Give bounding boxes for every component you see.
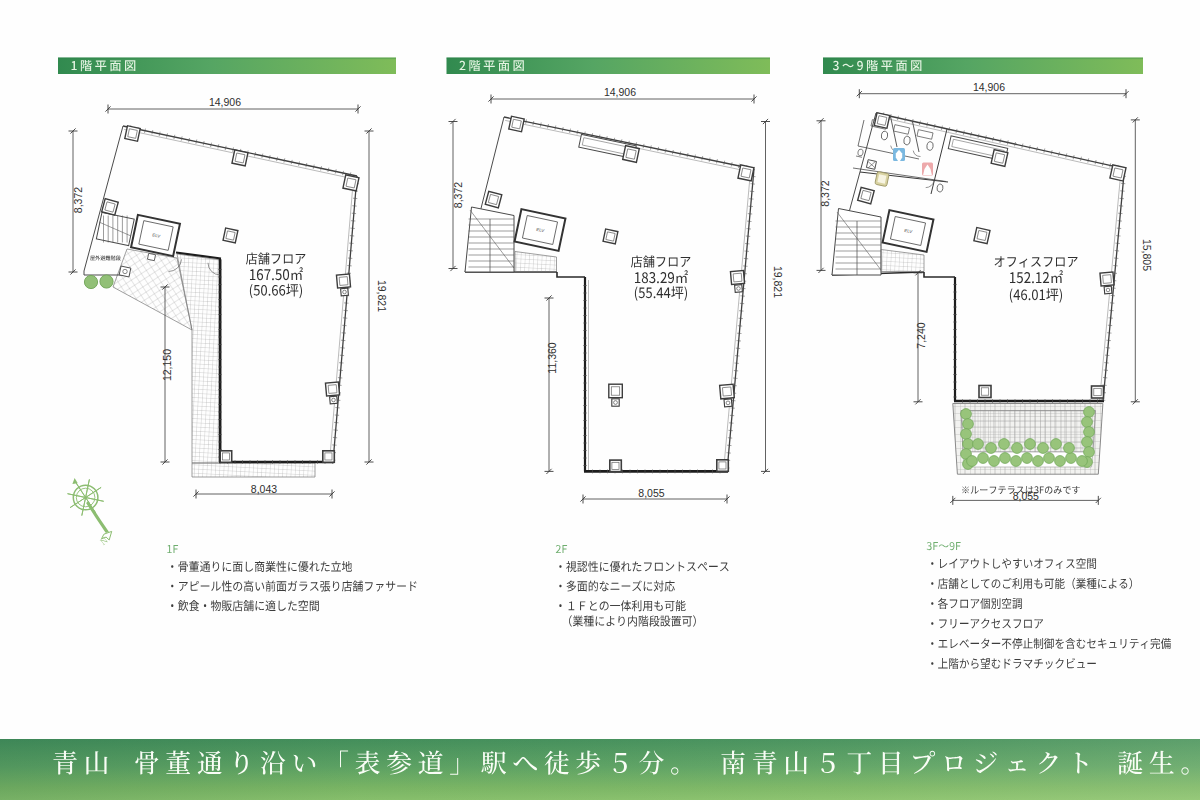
svg-text:8,043: 8,043 (251, 483, 277, 495)
svg-text:14,906: 14,906 (604, 86, 636, 98)
svg-text:12,150: 12,150 (161, 349, 173, 381)
svg-text:8,055: 8,055 (638, 487, 664, 499)
svg-text:8,372: 8,372 (72, 187, 84, 213)
svg-text:15,805: 15,805 (1141, 239, 1153, 271)
svg-text:14,906: 14,906 (209, 96, 241, 108)
svg-text:11,360: 11,360 (546, 342, 558, 373)
svg-text:19,821: 19,821 (772, 266, 784, 298)
svg-text:8,372: 8,372 (819, 180, 831, 206)
svg-text:7,240: 7,240 (915, 322, 927, 348)
svg-text:14,906: 14,906 (973, 81, 1005, 93)
svg-text:19,821: 19,821 (376, 280, 388, 312)
svg-text:8,372: 8,372 (452, 182, 464, 208)
